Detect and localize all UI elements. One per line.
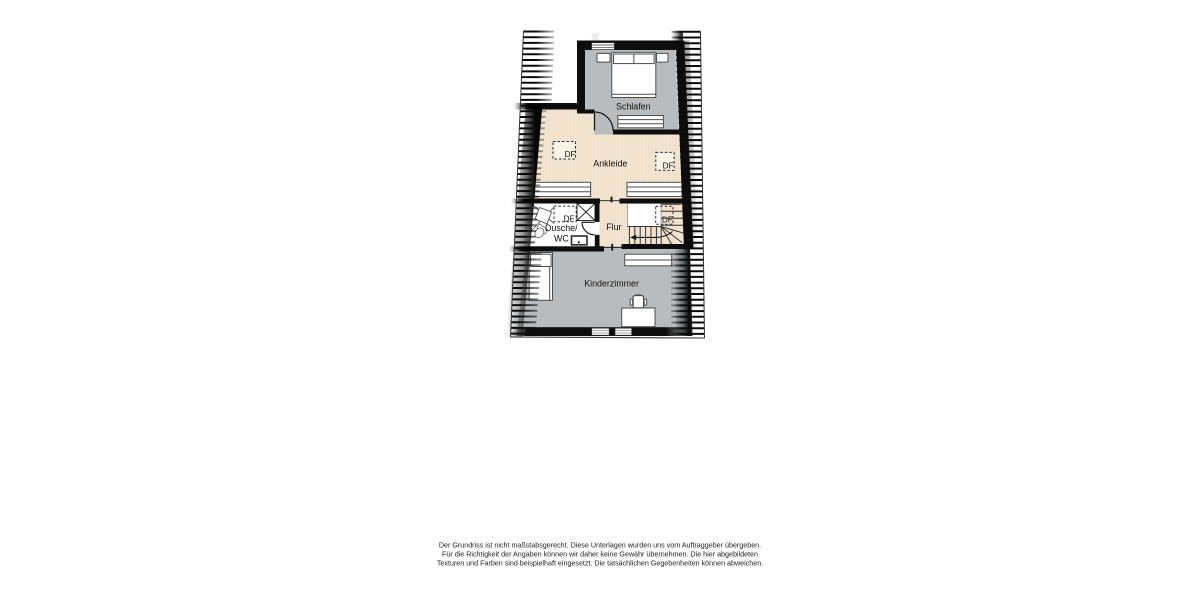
svg-text:Für die Richtigkeit der Angabe: Für die Richtigkeit der Angaben können w…: [442, 551, 758, 559]
svg-text:Texturen und Farben sind beisp: Texturen und Farben sind beispielhaft ei…: [437, 560, 763, 568]
svg-text:Kinderzimmer: Kinderzimmer: [584, 279, 639, 289]
svg-text:WC: WC: [554, 233, 569, 243]
svg-text:DF: DF: [662, 216, 673, 225]
svg-text:DF: DF: [663, 162, 674, 171]
svg-text:Ankleide: Ankleide: [593, 159, 627, 169]
svg-text:Flur: Flur: [606, 222, 621, 232]
svg-text:Der Grundriss ist nicht maßsta: Der Grundriss ist nicht maßstabsgerecht.…: [439, 542, 761, 550]
svg-text:Dusche/: Dusche/: [545, 223, 578, 233]
svg-text:Schlafen: Schlafen: [616, 101, 651, 111]
svg-text:DF: DF: [565, 150, 576, 159]
